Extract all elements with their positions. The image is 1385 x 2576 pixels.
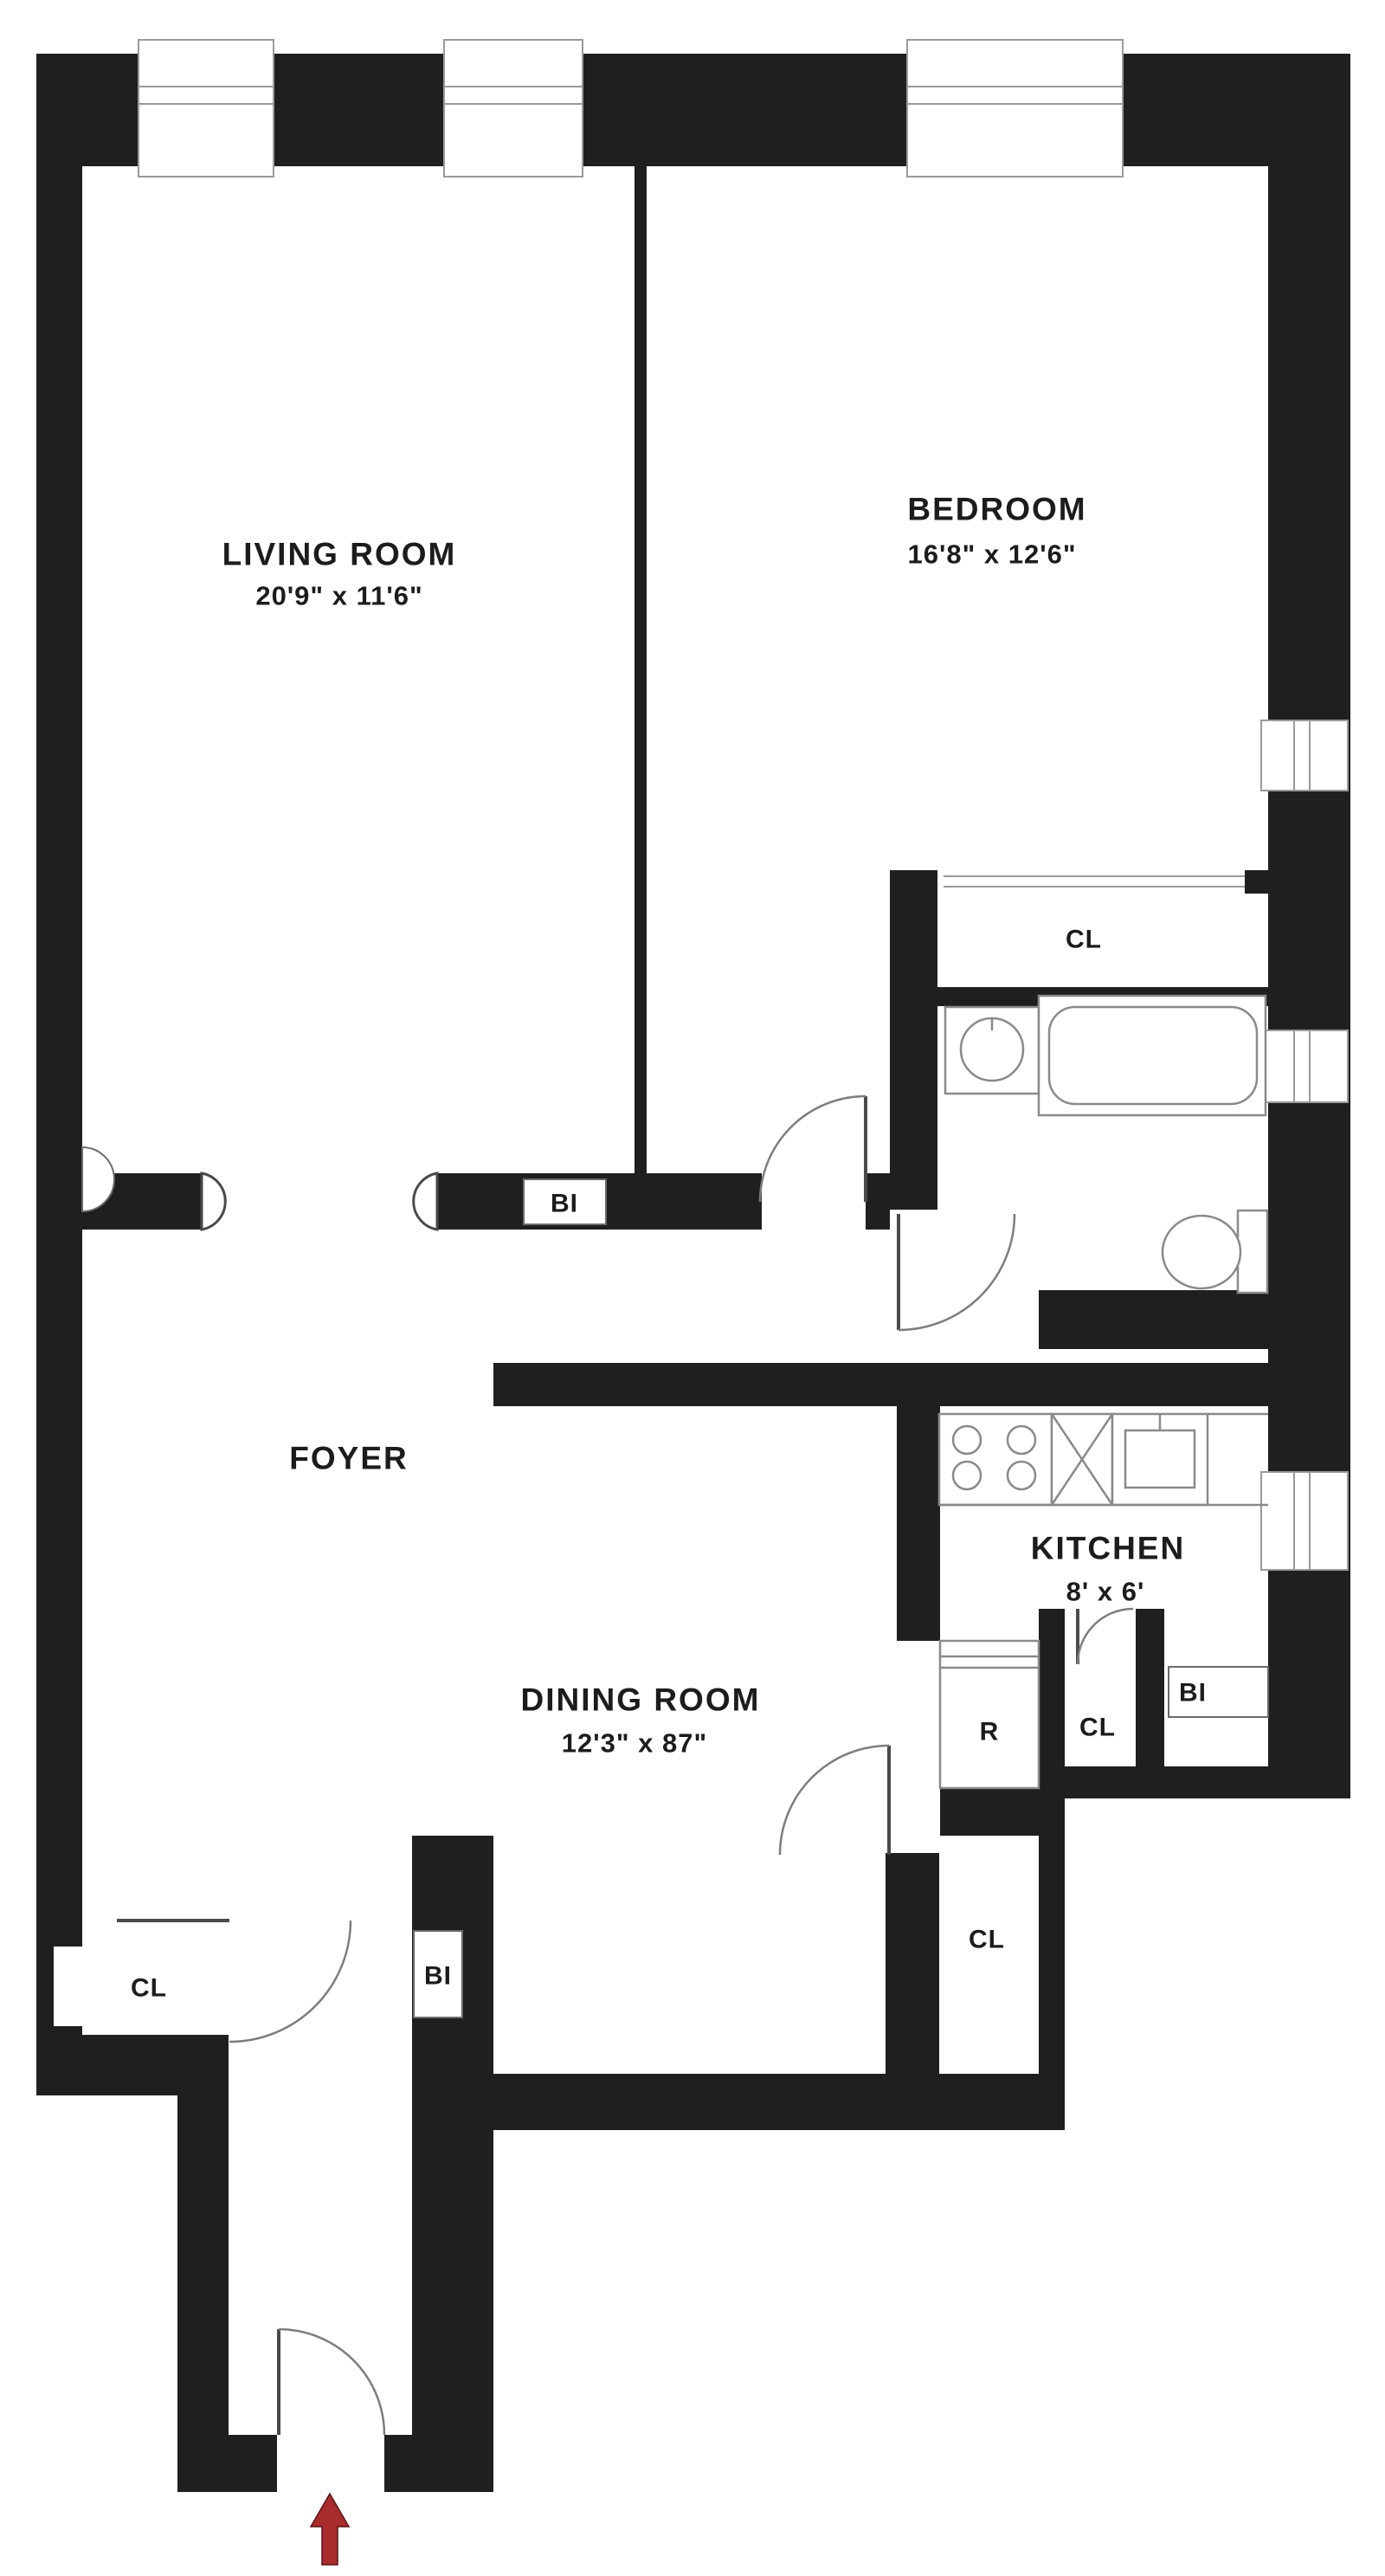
dining-door	[780, 1746, 889, 1855]
entry-door	[279, 2329, 384, 2435]
wall-foyer-north-bi	[467, 1173, 762, 1230]
floor-plan-page: LIVING ROOM 20'9" x 11'6" BEDROOM 16'8" …	[0, 0, 1385, 2576]
closet-label-kitchen-small: CL	[1079, 1714, 1116, 1742]
wall-under-fridge	[940, 1788, 1039, 1836]
wall-bedroom-door-jamb	[866, 1173, 890, 1230]
wall-closet-strip-right	[1039, 1609, 1065, 2130]
kitchen-label: KITCHEN	[1031, 1531, 1185, 1566]
wall-bathroom-south	[1039, 1290, 1268, 1349]
closet-label-bottom-left: CL	[131, 1974, 167, 2003]
wall-opening-cap	[437, 1173, 467, 1230]
wall-bedroom-closet-cap-right	[1245, 870, 1268, 894]
refrigerator	[940, 1641, 1039, 1788]
window-bedroom-top	[907, 40, 1123, 177]
bullnose-cap-right	[414, 1173, 437, 1230]
bedroom-label: BEDROOM	[907, 492, 1086, 527]
bedroom-closet-front	[944, 876, 1245, 887]
closet-label-dining-strip: CL	[969, 1926, 1005, 1954]
refrigerator-label: R	[980, 1718, 1000, 1746]
built-in-label-pier: BI	[424, 1962, 452, 1991]
floor-plan-canvas: LIVING ROOM 20'9" x 11'6" BEDROOM 16'8" …	[0, 0, 1385, 2576]
wall-corridor-bottom-left	[177, 2435, 277, 2492]
built-in-label-foyer: BI	[551, 1190, 578, 1218]
wall-dining-south-right	[462, 2074, 1065, 2130]
bedroom-dims: 16'8" x 12'6"	[907, 539, 1076, 570]
wall-bathroom-left	[890, 870, 937, 1210]
wall-foyer-kitchen-north	[493, 1363, 1268, 1406]
closet-label-bedroom: CL	[1066, 926, 1102, 954]
window-bedroom-east	[1261, 720, 1348, 791]
kitchen-sink	[1112, 1414, 1208, 1505]
living-room-dims: 20'9" x 11'6"	[255, 581, 422, 611]
window-living-2	[444, 40, 583, 177]
stove	[939, 1414, 1052, 1505]
bullnose-cap-left	[202, 1173, 225, 1230]
bedroom-door	[760, 1096, 866, 1202]
bathroom-sink	[945, 1007, 1039, 1094]
foyer-label: FOYER	[289, 1441, 408, 1476]
wall-kitchen-south	[1065, 1766, 1350, 1798]
entry-arrow-icon	[311, 2494, 349, 2565]
dining-room-label: DINING ROOM	[521, 1682, 761, 1718]
bathtub	[1039, 996, 1266, 1115]
wall-corridor-left	[177, 2095, 229, 2492]
living-room-label: LIVING ROOM	[222, 537, 457, 572]
window-living-1	[138, 40, 274, 177]
toilet	[1163, 1211, 1267, 1293]
wall-left	[36, 54, 82, 2095]
window-bathroom-east	[1261, 1030, 1348, 1102]
kitchen-door	[1078, 1609, 1133, 1664]
wall-kitchen-door-jamb-right	[1136, 1609, 1164, 1766]
bathroom-door	[899, 1214, 1015, 1330]
kitchen-dims: 8' x 6'	[1066, 1577, 1145, 1607]
window-kitchen-east	[1261, 1472, 1348, 1570]
dining-room-dims: 12'3" x 87"	[562, 1728, 707, 1759]
wall-dining-south-left	[36, 2035, 229, 2095]
wall-living-bedroom-divider	[635, 166, 647, 1173]
kitchen-cabinet-x	[1052, 1414, 1112, 1505]
wall-dining-door	[886, 1853, 939, 2078]
built-in-label-kitchen: BI	[1179, 1679, 1207, 1708]
